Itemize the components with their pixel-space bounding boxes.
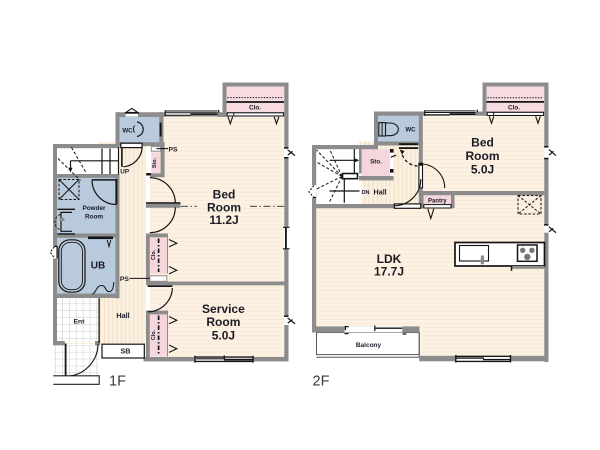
svg-text:Clo.: Clo. [151,249,157,260]
svg-text:Room: Room [466,149,500,163]
svg-text:Clo.: Clo. [151,329,157,340]
svg-text:Pantry: Pantry [428,199,447,205]
svg-text:SB: SB [121,347,131,356]
svg-text:2F: 2F [313,374,330,390]
svg-text:Bed: Bed [471,136,494,150]
svg-text:DN: DN [362,190,370,196]
svg-text:Hall: Hall [374,188,387,197]
svg-text:UB: UB [91,261,105,272]
svg-text:Clo.: Clo. [249,105,261,112]
svg-text:Clo.: Clo. [508,104,520,111]
svg-text:5.0J: 5.0J [212,328,235,342]
svg-text:1F: 1F [109,374,126,390]
svg-text:Hall: Hall [116,311,129,320]
svg-text:Room: Room [85,213,103,220]
svg-text:5.0J: 5.0J [471,162,494,176]
svg-text:UP: UP [120,168,129,175]
svg-text:WC: WC [405,127,416,134]
svg-text:WC: WC [122,127,133,134]
svg-text:PS: PS [120,276,130,283]
svg-text:Room: Room [206,315,240,329]
svg-text:Sto.: Sto. [370,159,382,166]
svg-text:Powder: Powder [82,205,106,212]
svg-text:PS: PS [169,146,179,153]
svg-text:Balcony: Balcony [356,342,382,349]
svg-text:11.2J: 11.2J [209,213,238,227]
svg-text:Sto.: Sto. [152,157,158,168]
svg-text:17.7J: 17.7J [374,265,404,279]
svg-text:Ent: Ent [74,319,86,326]
